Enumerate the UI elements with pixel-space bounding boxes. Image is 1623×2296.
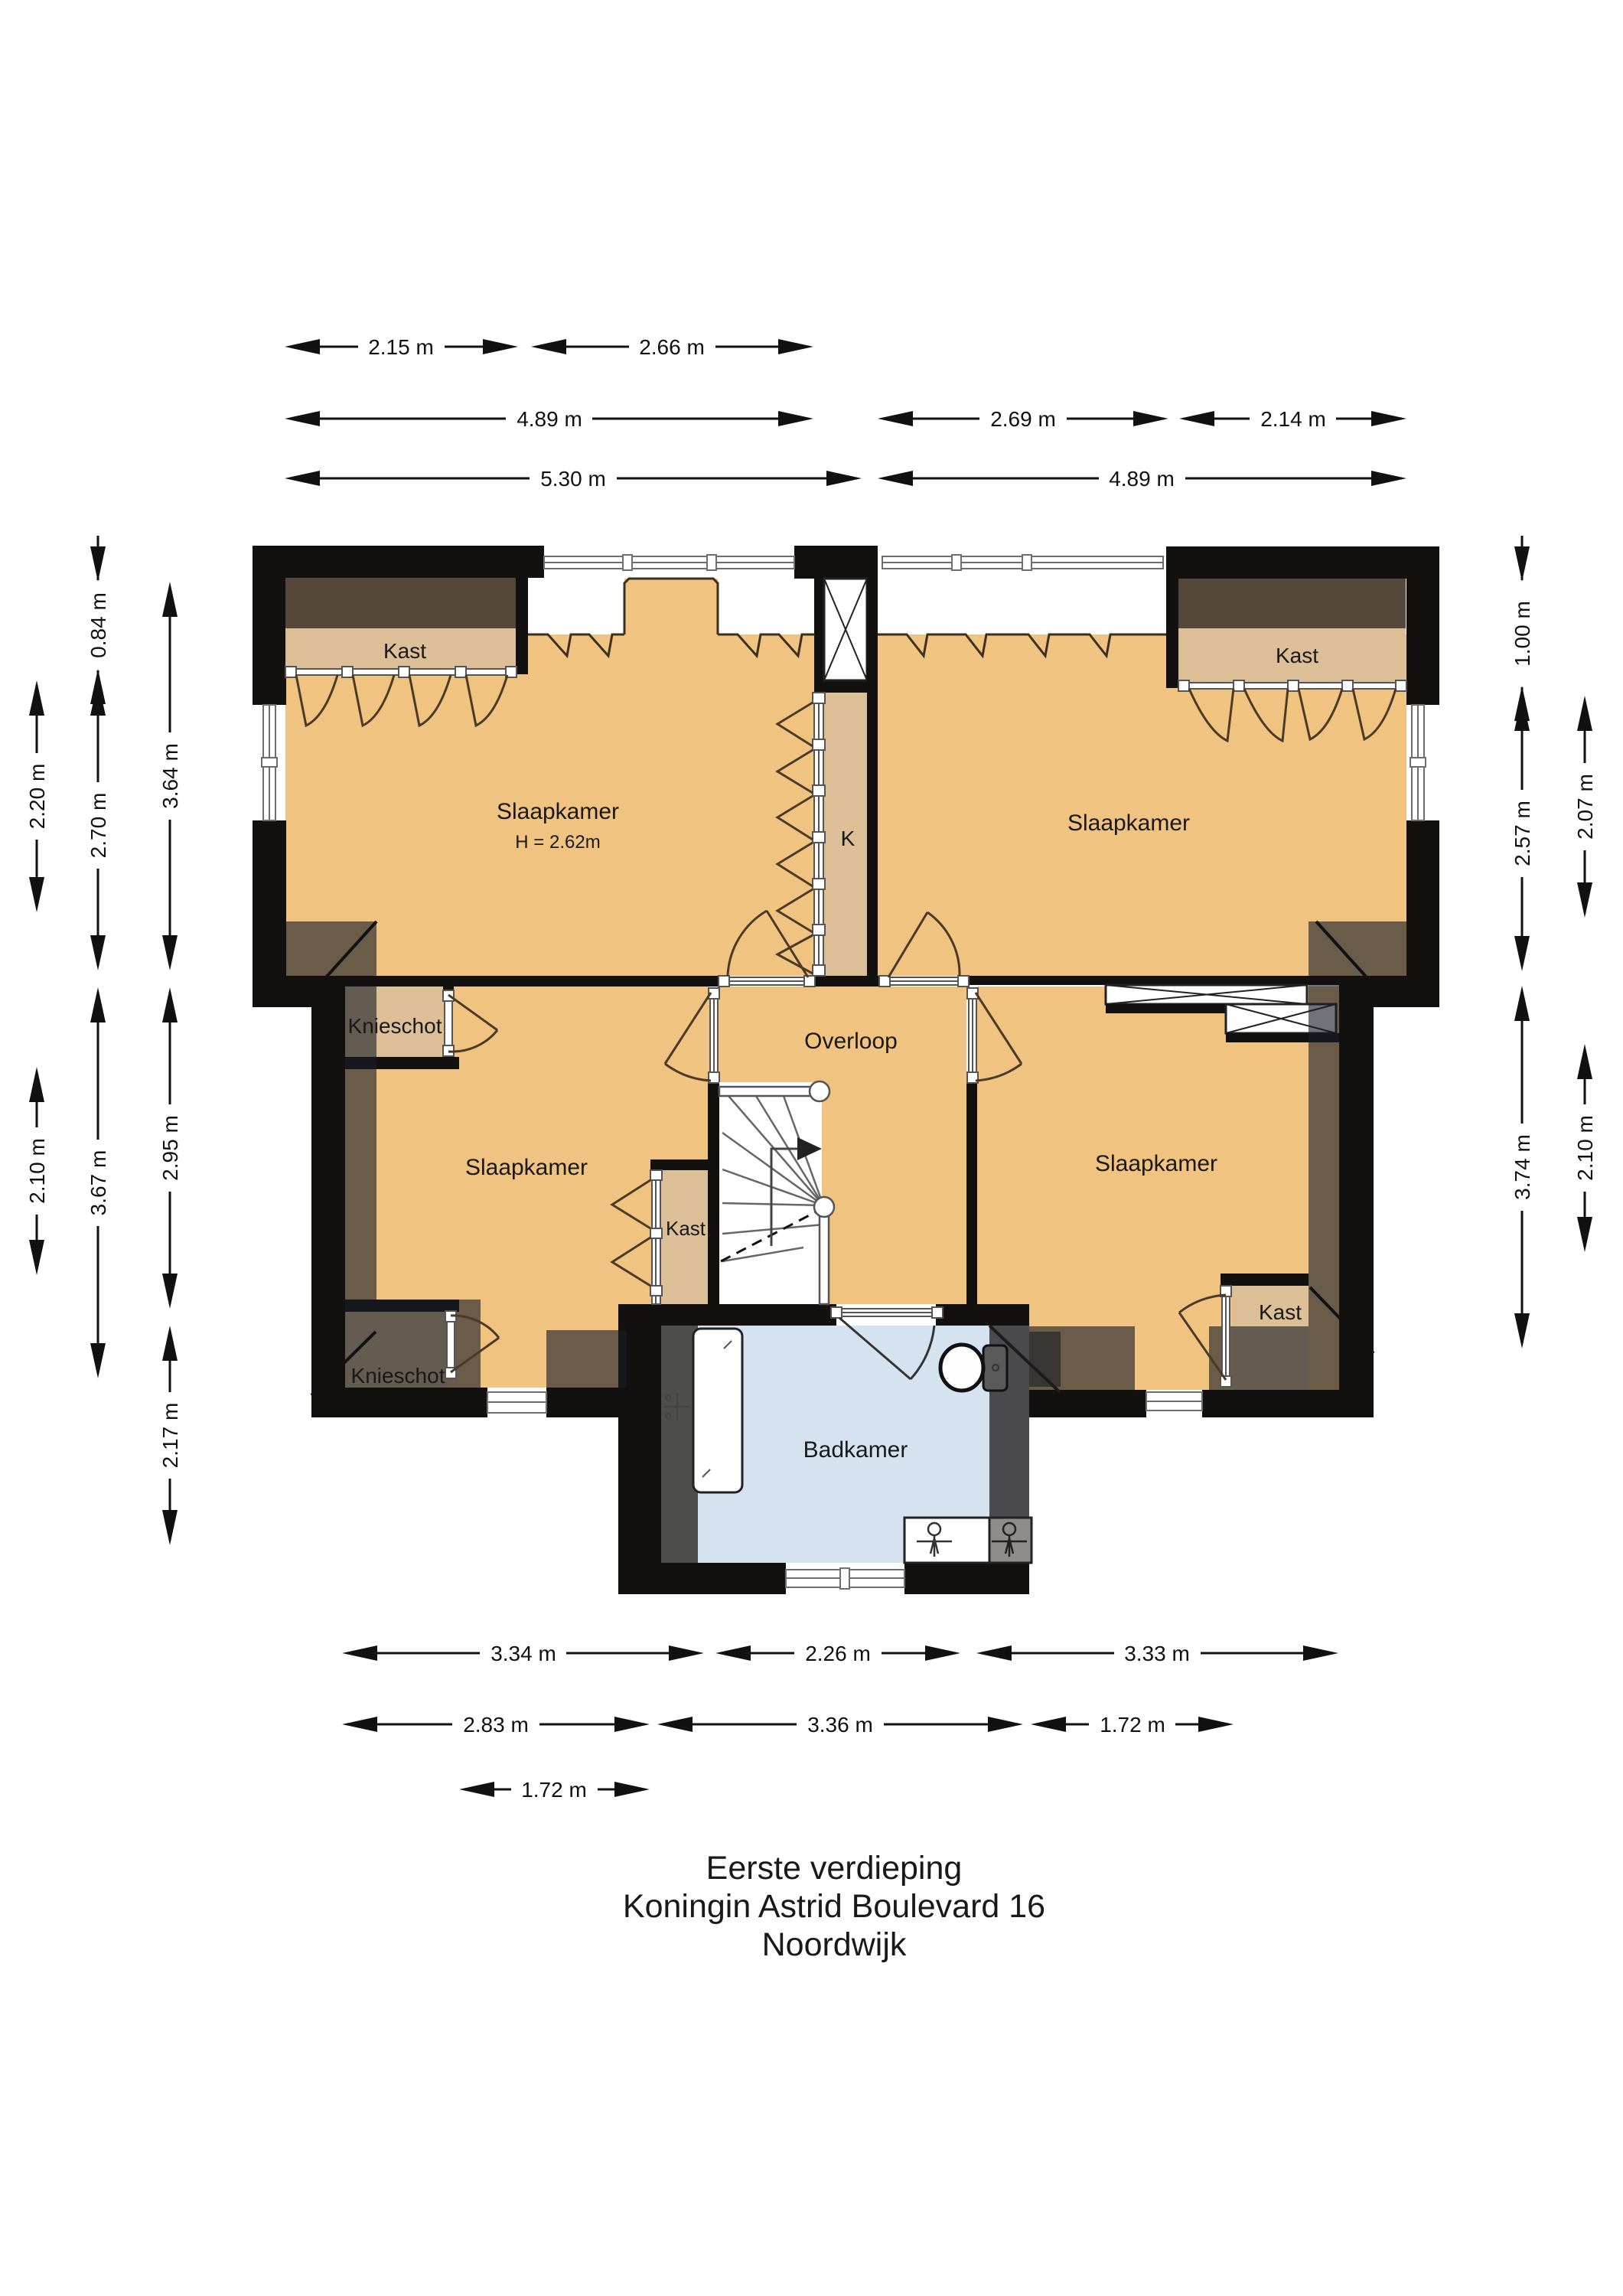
svg-text:2.66 m: 2.66 m [639,335,705,359]
svg-text:K: K [841,827,855,850]
svg-text:3.36 m: 3.36 m [807,1713,873,1737]
svg-text:Knieschot: Knieschot [348,1014,442,1038]
svg-text:Noordwijk: Noordwijk [762,1926,907,1963]
svg-text:3.64 m: 3.64 m [158,743,182,809]
svg-text:Kast: Kast [666,1217,706,1240]
svg-text:Kast: Kast [1259,1300,1302,1324]
svg-text:2.10 m: 2.10 m [1573,1115,1597,1181]
svg-text:2.17 m: 2.17 m [158,1403,182,1469]
svg-text:2.57 m: 2.57 m [1511,801,1534,866]
svg-text:Eerste verdieping: Eerste verdieping [706,1850,963,1887]
svg-text:Knieschot: Knieschot [351,1364,445,1388]
svg-text:Badkamer: Badkamer [803,1437,908,1463]
svg-text:Slaapkamer: Slaapkamer [1095,1151,1217,1176]
svg-text:3.74 m: 3.74 m [1511,1134,1534,1200]
svg-text:4.89 m: 4.89 m [1109,467,1175,491]
svg-text:Slaapkamer: Slaapkamer [465,1155,588,1180]
svg-text:Kast: Kast [1276,644,1318,667]
svg-text:2.95 m: 2.95 m [158,1115,182,1181]
svg-text:Slaapkamer: Slaapkamer [497,799,619,824]
svg-text:4.89 m: 4.89 m [517,407,582,431]
svg-text:1.72 m: 1.72 m [1100,1713,1165,1737]
svg-text:5.30 m: 5.30 m [540,467,606,491]
svg-text:3.67 m: 3.67 m [86,1150,110,1216]
svg-text:1.72 m: 1.72 m [521,1778,587,1802]
svg-text:Kast: Kast [383,639,426,663]
svg-text:2.14 m: 2.14 m [1260,407,1326,431]
svg-text:3.34 m: 3.34 m [490,1642,556,1665]
svg-text:2.15 m: 2.15 m [368,335,434,359]
svg-text:1.00 m: 1.00 m [1511,601,1534,667]
svg-text:2.20 m: 2.20 m [25,764,49,830]
svg-text:2.69 m: 2.69 m [990,407,1056,431]
svg-text:0.84 m: 0.84 m [86,592,110,658]
svg-text:Overloop: Overloop [804,1029,898,1054]
svg-text:2.70 m: 2.70 m [86,793,110,859]
svg-text:Slaapkamer: Slaapkamer [1067,810,1190,836]
svg-text:Koningin Astrid Boulevard 16: Koningin Astrid Boulevard 16 [623,1888,1045,1925]
svg-text:2.26 m: 2.26 m [805,1642,871,1665]
svg-text:2.07 m: 2.07 m [1573,774,1597,840]
svg-text:H = 2.62m: H = 2.62m [515,832,600,853]
svg-text:3.33 m: 3.33 m [1124,1642,1190,1665]
svg-text:2.10 m: 2.10 m [25,1138,49,1204]
svg-text:2.83 m: 2.83 m [463,1713,529,1737]
